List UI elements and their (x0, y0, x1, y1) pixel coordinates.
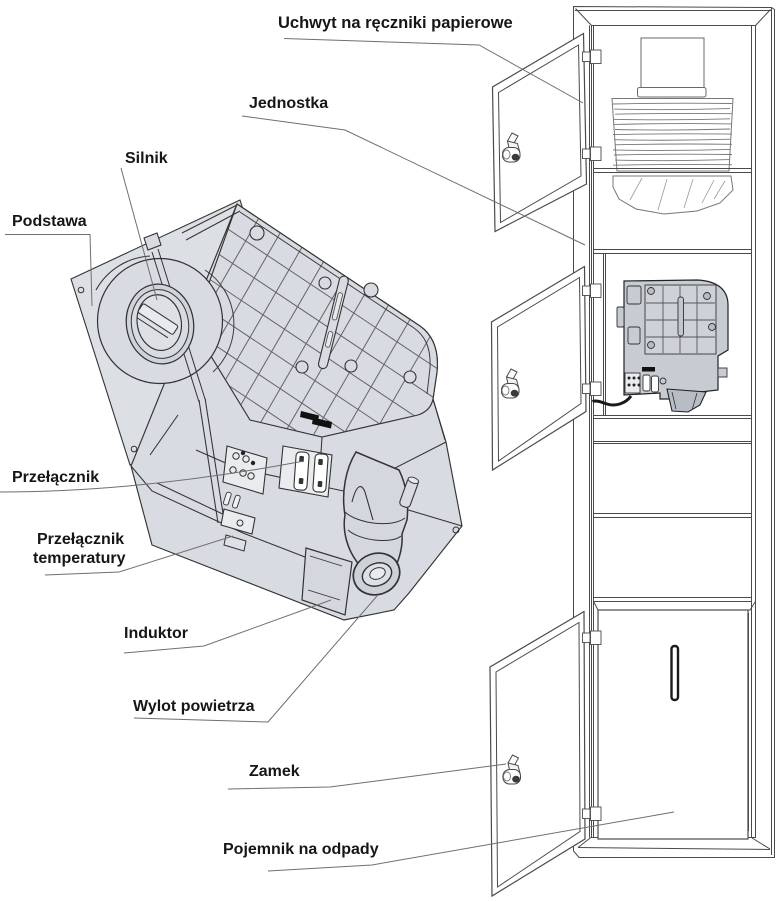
svg-text:Wylot powietrza: Wylot powietrza (133, 698, 255, 715)
svg-text:Jednostka: Jednostka (249, 95, 328, 112)
svg-text:Przełącznik: Przełącznik (37, 531, 124, 548)
svg-text:Induktor: Induktor (124, 625, 188, 642)
svg-text:Zamek: Zamek (249, 763, 300, 780)
svg-text:Podstawa: Podstawa (12, 213, 87, 230)
svg-text:Przełącznik: Przełącznik (12, 469, 99, 486)
svg-text:Pojemnik na odpady: Pojemnik na odpady (223, 841, 379, 858)
svg-text:temperatury: temperatury (33, 550, 126, 567)
svg-text:Silnik: Silnik (125, 150, 168, 167)
svg-text:Uchwyt na ręczniki papierowe: Uchwyt na ręczniki papierowe (278, 14, 513, 32)
